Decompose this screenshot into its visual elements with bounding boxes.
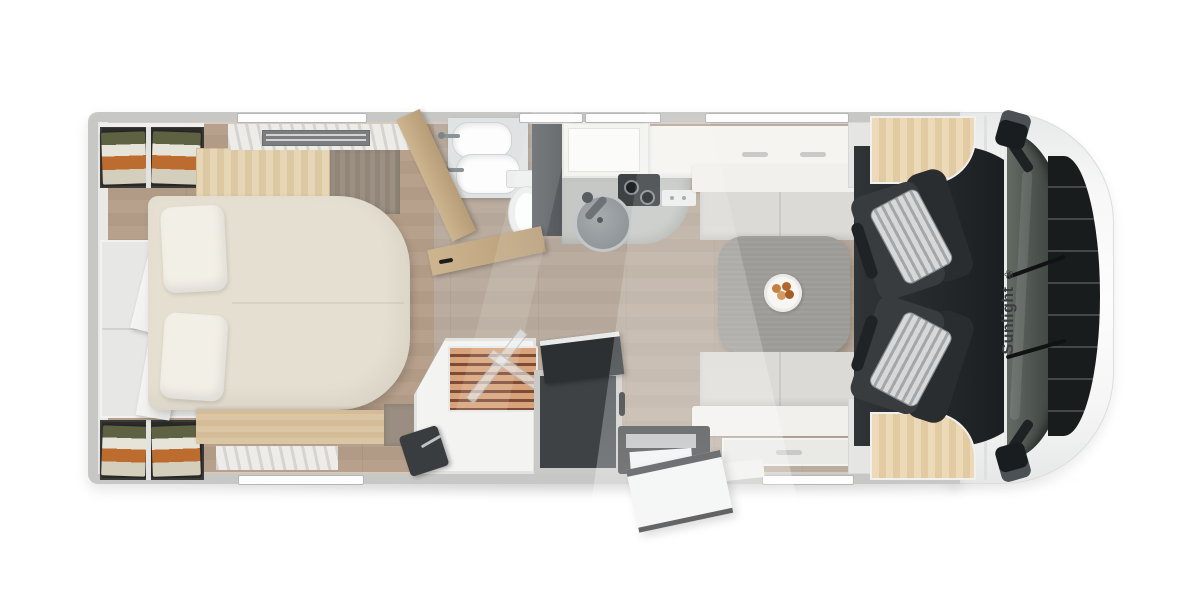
basin-faucet (444, 134, 460, 138)
folded-clothes (151, 425, 201, 477)
flower-icon: ❀ (1002, 269, 1016, 279)
window-top-4 (705, 113, 849, 123)
wardrobe-divider (146, 126, 151, 188)
brand-logo: Sunlight ❀ (989, 222, 1029, 402)
wardrobe-shelf-edge (100, 123, 204, 127)
window-top-1 (237, 113, 367, 123)
folded-clothes (101, 425, 147, 477)
foot-bench (196, 410, 384, 444)
pillow-left (160, 204, 228, 293)
ceiling-vent (262, 130, 370, 146)
faucet-knob (438, 132, 445, 139)
drawer-handle (742, 152, 768, 157)
plate-with-food (764, 274, 802, 312)
mattress-seam (232, 302, 404, 304)
brand-name: Sunlight (1000, 287, 1018, 355)
folded-clothes (151, 131, 201, 185)
wardrobe-divider (146, 420, 151, 480)
window-bottom-1 (238, 475, 364, 485)
sink-drain (597, 217, 603, 223)
folded-clothes (101, 131, 147, 185)
drawer-handle (800, 152, 826, 157)
kitchen-faucet-head (582, 192, 593, 203)
bedding-drape (216, 446, 338, 470)
kitchen-open-drawer (568, 128, 640, 172)
pillow-right (159, 312, 229, 402)
floorplan-render: Sunlight ❀ (0, 0, 1200, 600)
washbasin-1 (452, 122, 512, 158)
basin-faucet (448, 168, 464, 172)
